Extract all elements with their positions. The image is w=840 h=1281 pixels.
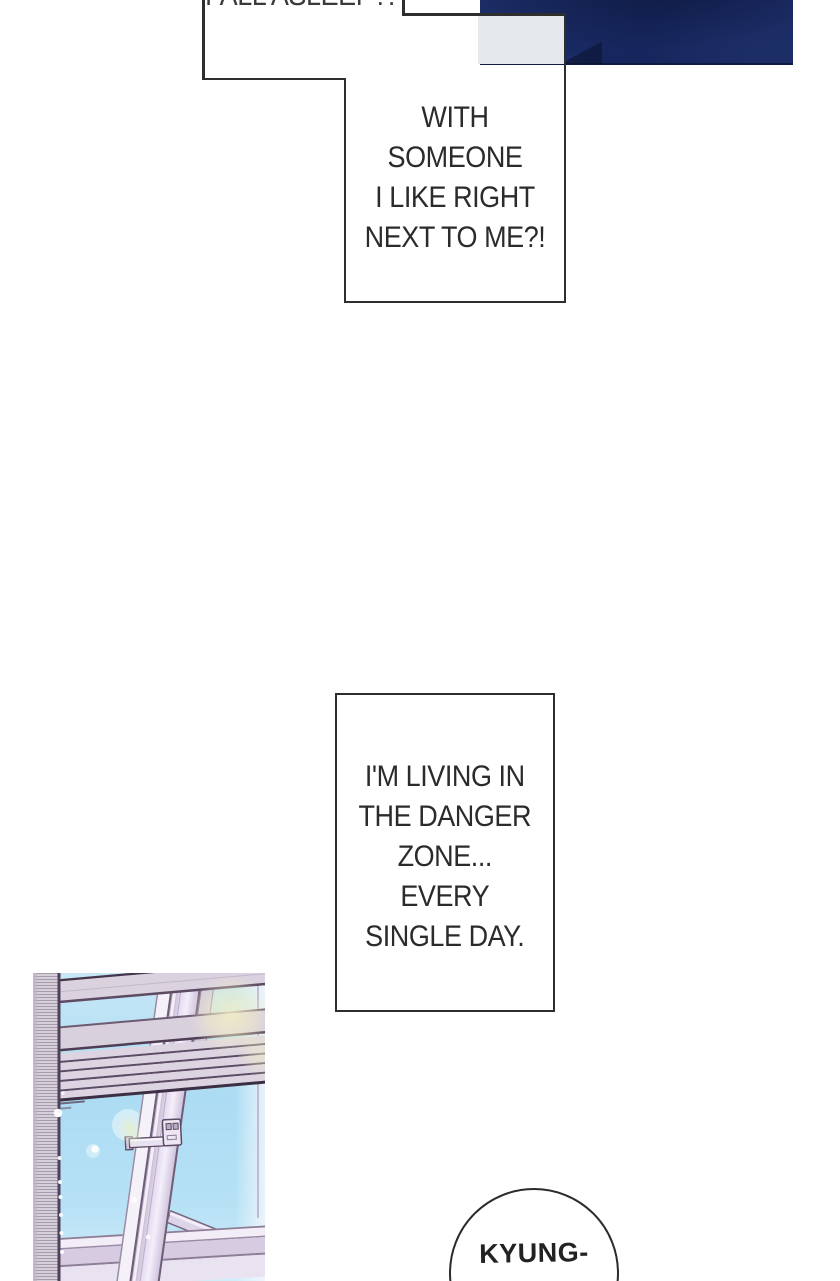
top-left-box-bottom-border (202, 78, 346, 81)
round-speech-bubble: KYUNG- (449, 1188, 619, 1281)
speech-box-main: WITH SOMEONE I LIKE RIGHT NEXT TO ME?! (357, 98, 553, 258)
blind-side-strip (33, 973, 60, 1281)
main-bubble-bottom-border (344, 301, 567, 304)
main-bubble-top-border (402, 13, 566, 16)
speech-text-round: KYUNG- (451, 1237, 618, 1271)
main-bubble-left-border (344, 78, 347, 304)
speech-line: WITH SOMEONE (357, 98, 553, 178)
window-art-panel (33, 973, 265, 1281)
strip-edge (58, 973, 61, 1281)
main-bubble-right-border (564, 13, 567, 303)
speech-text-danger: I'M LIVING IN THE DANGER ZONE... EVERY S… (348, 757, 542, 957)
speech-line: I LIKE RIGHT (357, 178, 553, 218)
speech-line: NEXT TO ME?! (357, 218, 553, 258)
window-art (33, 973, 265, 1281)
speech-line: SINGLE DAY. (348, 917, 542, 957)
comic-page: FALL ASLEEP?! WITH SOMEONE I LIKE RIGHT … (0, 0, 840, 1281)
clipped-speech-text: FALL ASLEEP?! (201, 0, 399, 13)
speech-line: EVERY (348, 877, 542, 917)
speech-line: ZONE... (348, 837, 542, 877)
speech-box-danger: I'M LIVING IN THE DANGER ZONE... EVERY S… (335, 693, 555, 1012)
speech-line: I'M LIVING IN (348, 757, 542, 797)
strip-left-shade (33, 973, 37, 1281)
speech-line: THE DANGER (348, 797, 542, 837)
overlay-square (478, 15, 564, 64)
